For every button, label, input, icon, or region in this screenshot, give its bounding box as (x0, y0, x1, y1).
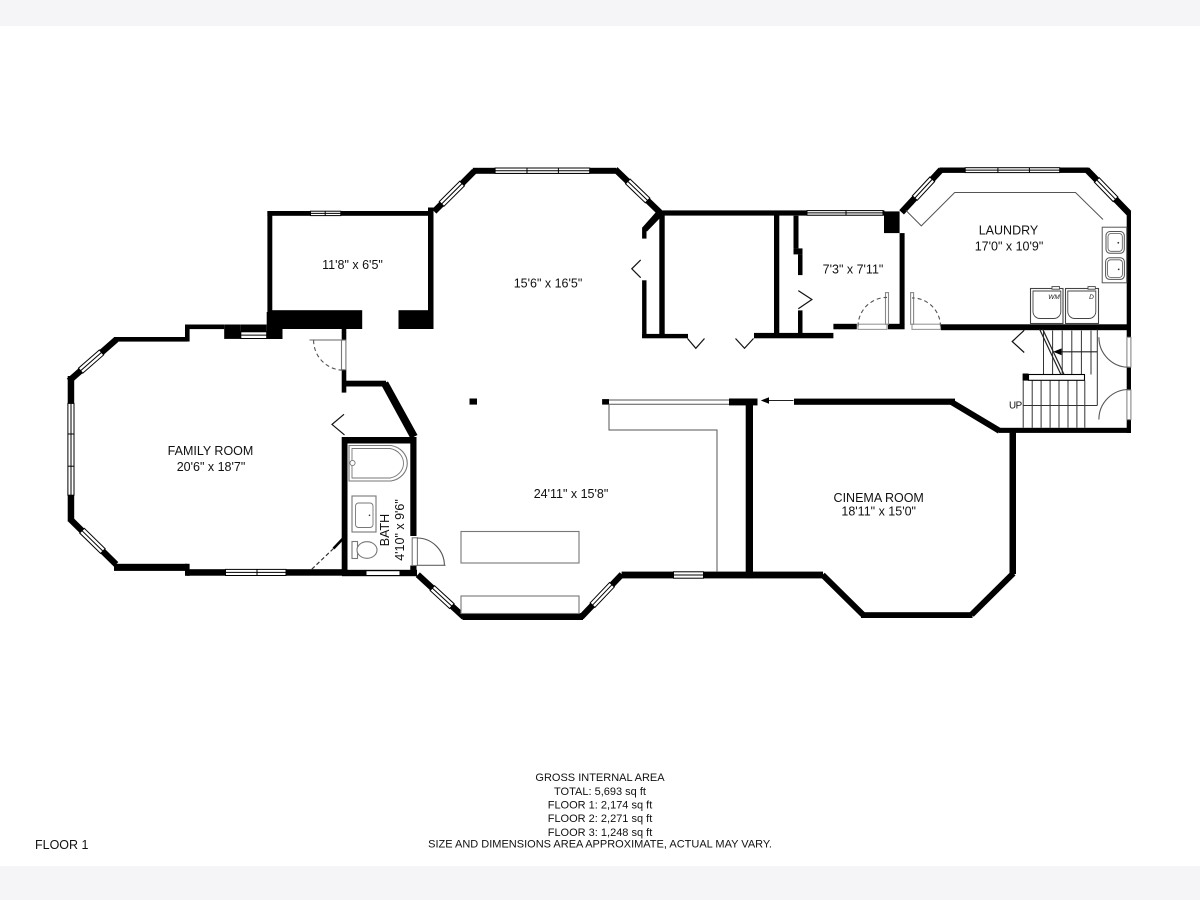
svg-text:FLOOR 1: 2,174 sq ft: FLOOR 1: 2,174 sq ft (548, 800, 653, 812)
svg-text:18'11" x 15'0": 18'11" x 15'0" (841, 505, 916, 519)
svg-text:7'3" x 7'11": 7'3" x 7'11" (823, 263, 884, 277)
svg-text:17'0" x 10'9": 17'0" x 10'9" (975, 240, 1044, 254)
svg-text:FLOOR 1: FLOOR 1 (35, 838, 89, 852)
svg-text:11'8" x 6'5": 11'8" x 6'5" (322, 258, 383, 272)
svg-text:FAMILY ROOM: FAMILY ROOM (168, 444, 254, 458)
svg-text:GROSS INTERNAL AREA: GROSS INTERNAL AREA (535, 772, 665, 784)
svg-text:24'11" x 15'8": 24'11" x 15'8" (534, 487, 609, 501)
svg-text:UP: UP (1009, 400, 1023, 411)
svg-text:FLOOR 3: 1,248 sq ft: FLOOR 3: 1,248 sq ft (548, 827, 653, 839)
svg-text:TOTAL: 5,693 sq ft: TOTAL: 5,693 sq ft (554, 786, 646, 798)
svg-text:20'6" x 18'7": 20'6" x 18'7" (177, 460, 246, 474)
svg-text:LAUNDRY: LAUNDRY (979, 224, 1039, 238)
svg-text:D: D (1089, 294, 1094, 301)
svg-text:WM: WM (1048, 294, 1060, 301)
svg-text:SIZE AND DIMENSIONS AREA APPRO: SIZE AND DIMENSIONS AREA APPROXIMATE, AC… (428, 839, 772, 851)
svg-text:BATH: BATH (378, 514, 392, 546)
svg-text:15'6" x 16'5": 15'6" x 16'5" (514, 277, 583, 291)
svg-text:CINEMA ROOM: CINEMA ROOM (834, 491, 924, 505)
svg-text:4'10" x 9'6": 4'10" x 9'6" (393, 499, 407, 561)
svg-text:FLOOR 2: 2,271 sq ft: FLOOR 2: 2,271 sq ft (548, 813, 653, 825)
